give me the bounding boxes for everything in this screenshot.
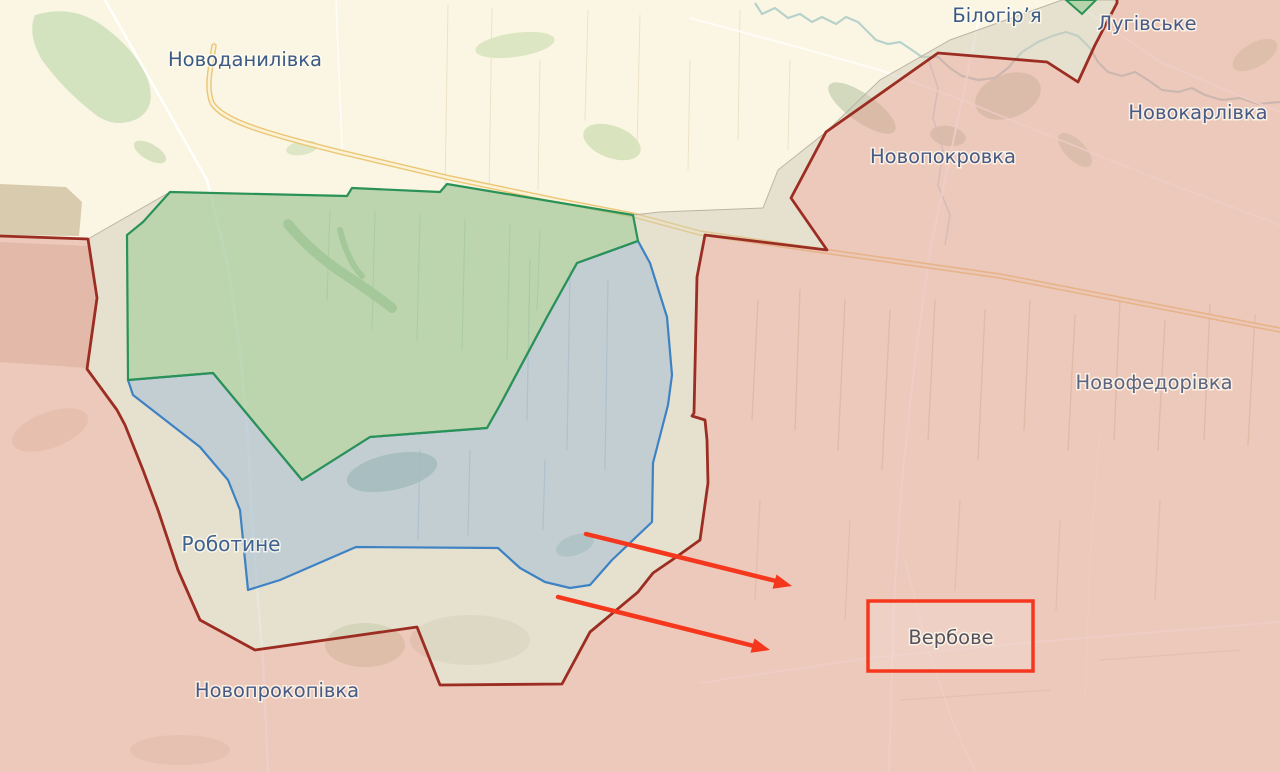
town-label-robotyne: Роботине xyxy=(182,532,281,556)
town-label-verbove: Вербове xyxy=(908,626,993,649)
town-label-novoprokopivka: Новопрокопівка xyxy=(195,679,359,702)
town-label-novopokrovka: Новопокровка xyxy=(870,145,1016,168)
town-label-luhivske: Лугівське xyxy=(1097,12,1196,35)
town-label-bilohirya: Білогір’я xyxy=(952,4,1041,27)
town-label-novodanylivka: Новоданилівка xyxy=(168,48,322,71)
map-viewport[interactable]: Новоданилівка Білогір’я Лугівське Новока… xyxy=(0,0,1280,772)
map-canvas[interactable]: Новоданилівка Білогір’я Лугівське Новока… xyxy=(0,0,1280,772)
town-label-novofedorivka: Новофедорівка xyxy=(1075,371,1232,394)
town-label-novokarlivka: Новокарлівка xyxy=(1128,101,1267,124)
